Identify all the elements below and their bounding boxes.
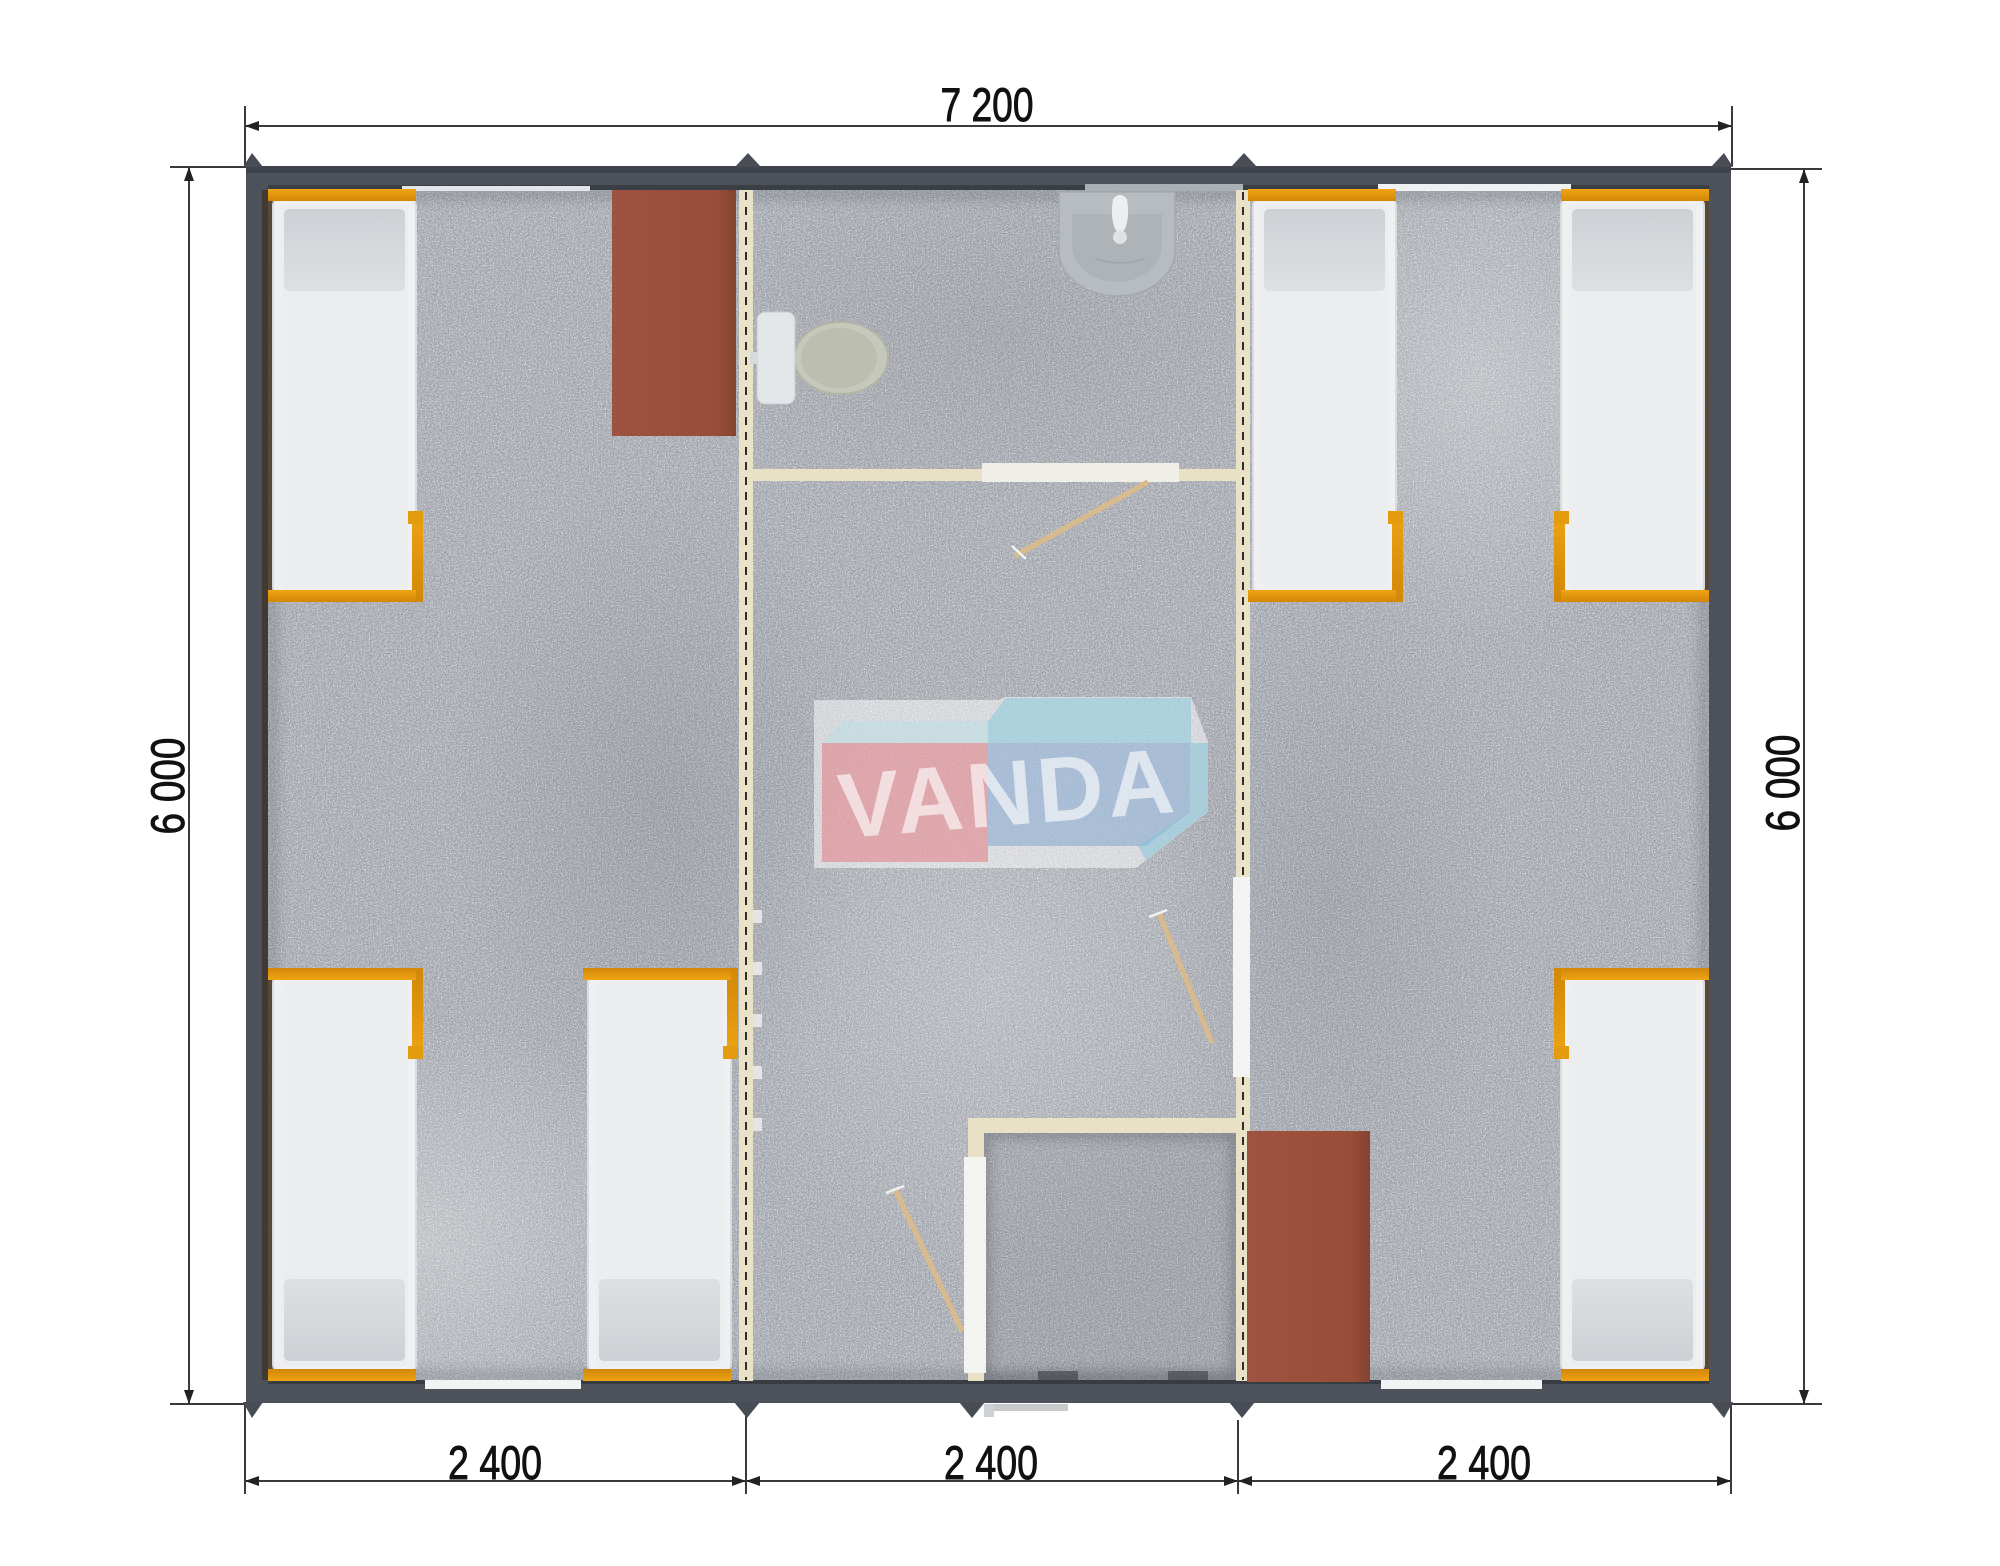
svg-text:2 400: 2 400 — [1437, 1436, 1531, 1489]
svg-text:2 400: 2 400 — [448, 1436, 542, 1489]
svg-text:6 000: 6 000 — [141, 738, 194, 835]
svg-text:6 000: 6 000 — [1756, 735, 1809, 832]
svg-text:2 400: 2 400 — [944, 1436, 1038, 1489]
svg-text:7 200: 7 200 — [941, 78, 1034, 131]
